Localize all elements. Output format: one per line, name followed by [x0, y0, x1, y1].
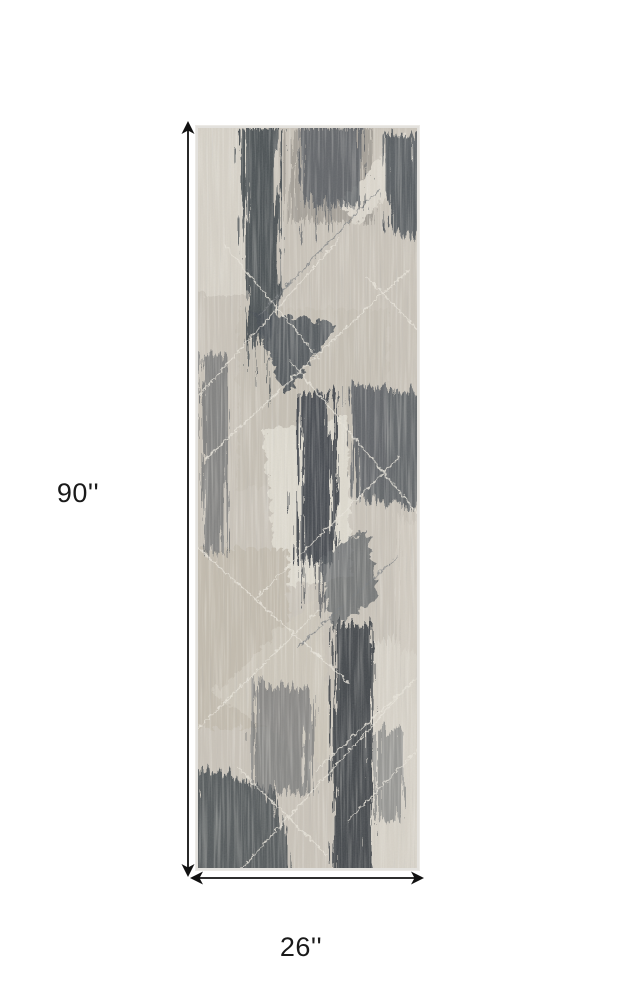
height-dimension-arrow [179, 120, 197, 878]
rug-pattern-art [196, 126, 419, 870]
width-dimension-arrow [189, 869, 425, 887]
product-dimension-diagram: 90'' 26'' [0, 0, 634, 1000]
height-label: 90'' [48, 478, 108, 509]
rug-image [196, 126, 419, 870]
width-label: 26'' [271, 932, 331, 963]
